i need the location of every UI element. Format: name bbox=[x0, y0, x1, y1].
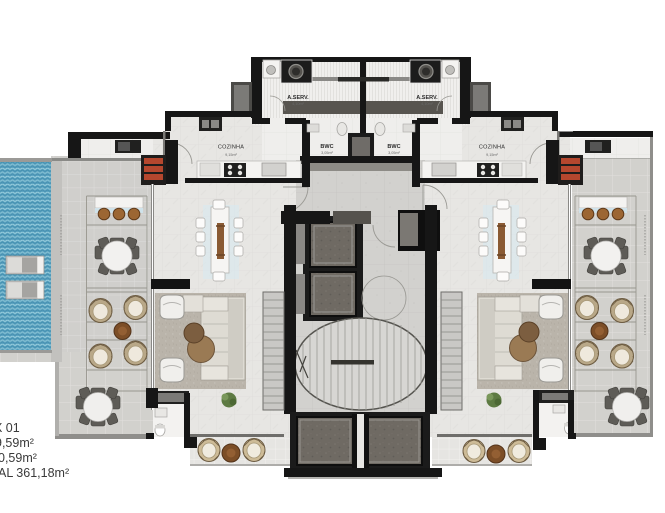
svg-text:9,59m²: 9,59m² bbox=[0, 436, 34, 450]
svg-text:A.SERV.: A.SERV. bbox=[287, 95, 309, 101]
svg-text:9,15m²: 9,15m² bbox=[486, 153, 499, 157]
svg-text:9,15m²: 9,15m² bbox=[225, 153, 238, 157]
svg-text:COZINHA: COZINHA bbox=[479, 145, 505, 151]
svg-text:BWC: BWC bbox=[320, 144, 333, 150]
svg-text:X 01: X 01 bbox=[0, 421, 20, 435]
svg-text:COZINHA: COZINHA bbox=[218, 145, 244, 151]
svg-text:BWC: BWC bbox=[387, 144, 400, 150]
svg-text:4,10m²: 4,10m² bbox=[292, 102, 305, 106]
svg-text:0,59m²: 0,59m² bbox=[0, 451, 37, 465]
svg-text:3,05m²: 3,05m² bbox=[321, 151, 334, 155]
svg-text:4,10m²: 4,10m² bbox=[421, 102, 434, 106]
svg-text:A.SERV.: A.SERV. bbox=[416, 95, 438, 101]
svg-text:AL 361,18m²: AL 361,18m² bbox=[0, 466, 69, 480]
svg-text:3,05m²: 3,05m² bbox=[388, 151, 401, 155]
